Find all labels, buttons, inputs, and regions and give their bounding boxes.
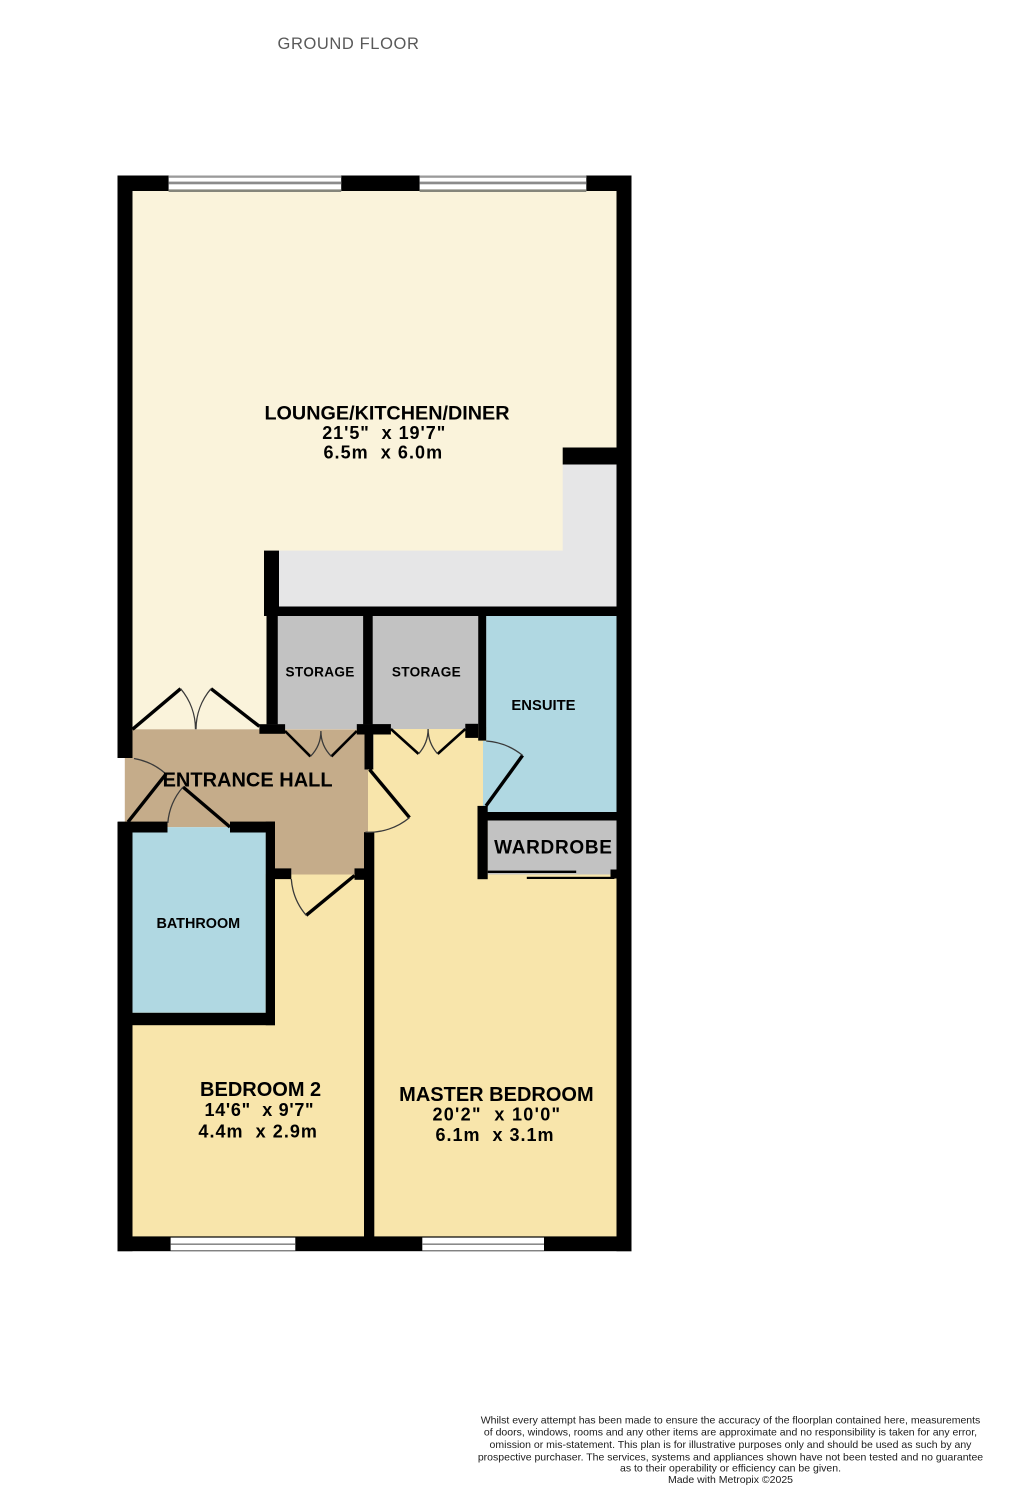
svg-text:Whilst every attempt has been: Whilst every attempt has been made to en… — [481, 1415, 981, 1427]
svg-text:ENSUITE: ENSUITE — [511, 698, 575, 714]
svg-text:20'2" x 10'0": 20'2" x 10'0" — [432, 1105, 561, 1125]
svg-text:BATHROOM: BATHROOM — [156, 916, 240, 932]
svg-text:LOUNGE/KITCHEN/DINER: LOUNGE/KITCHEN/DINER — [264, 403, 509, 425]
svg-text:of doors, windows, rooms and a: of doors, windows, rooms and any other i… — [484, 1426, 977, 1438]
svg-text:4.4m x 2.9m: 4.4m x 2.9m — [198, 1121, 318, 1141]
svg-text:BEDROOM 2: BEDROOM 2 — [200, 1079, 321, 1101]
svg-text:MASTER BEDROOM: MASTER BEDROOM — [399, 1084, 593, 1106]
svg-text:21'5" x 19'7": 21'5" x 19'7" — [322, 423, 446, 443]
svg-text:ENTRANCE HALL: ENTRANCE HALL — [163, 770, 333, 792]
svg-text:WARDROBE: WARDROBE — [494, 837, 613, 858]
svg-text:Made with Metropix ©2025: Made with Metropix ©2025 — [668, 1474, 793, 1486]
svg-text:prospective purchaser. The ser: prospective purchaser. The services, sys… — [478, 1451, 983, 1463]
svg-text:as to their operability or eff: as to their operability or efficiency ca… — [620, 1463, 841, 1475]
svg-text:6.1m x 3.1m: 6.1m x 3.1m — [435, 1125, 554, 1145]
svg-text:omission or mis-statement. Thi: omission or mis-statement. This plan is … — [490, 1439, 973, 1451]
svg-text:GROUND FLOOR: GROUND FLOOR — [278, 35, 420, 53]
svg-text:6.5m x 6.0m: 6.5m x 6.0m — [323, 442, 443, 462]
svg-text:STORAGE: STORAGE — [286, 664, 355, 679]
svg-text:STORAGE: STORAGE — [392, 664, 461, 679]
svg-text:14'6" x 9'7": 14'6" x 9'7" — [205, 1100, 315, 1120]
